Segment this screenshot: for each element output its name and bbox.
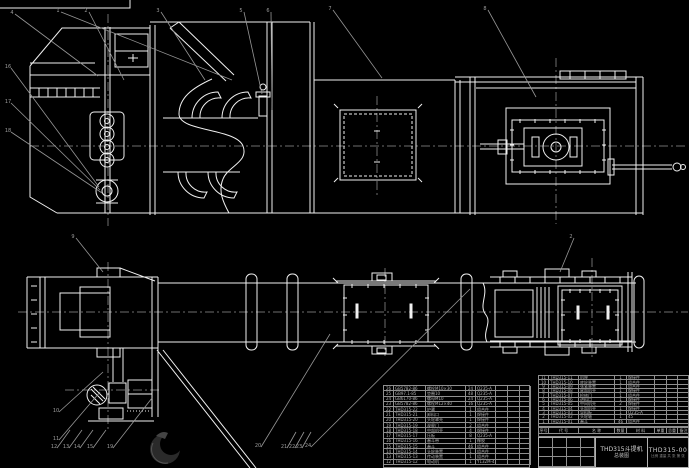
bom-header-cell: 序号 [539, 428, 549, 434]
balloon-number: 2 [569, 234, 572, 240]
bom-cell: THD315-12 [394, 460, 426, 465]
leader-line [11, 68, 99, 187]
drawing-type: 总装图 [614, 453, 629, 459]
bom-cell: 12 [384, 460, 394, 465]
leader-line [113, 398, 152, 448]
leader-line [93, 430, 106, 448]
side-elevation-view [30, 22, 686, 215]
sheet-frame-fragment [0, 0, 130, 8]
bom-cell [520, 460, 531, 465]
title-extra-row: 比例 重量 共 张 第 张 [651, 454, 685, 458]
balloon-number: 4 [10, 10, 13, 16]
leader-line [244, 12, 262, 94]
balloon-number: 20 [255, 443, 261, 449]
centerlines [18, 14, 688, 430]
bom-header-cell: 备注 [678, 428, 689, 434]
leader-line [76, 238, 103, 272]
balloon-number: 13 [63, 444, 69, 450]
product-title: THD315斗提机 [600, 446, 642, 453]
leader-line [261, 334, 330, 447]
balloon-number: 22 [289, 444, 295, 450]
balloon-number: 1 [56, 8, 59, 14]
leader-line [488, 10, 536, 97]
bom-table-left: 26GB5782-86螺栓M10×3024Q235-A25GB97.1-85垫圈… [383, 385, 530, 468]
leader-line [333, 10, 382, 78]
balloon-number: 9 [71, 234, 74, 240]
bom-cell [678, 420, 689, 424]
leader-line [560, 238, 574, 272]
balloon-number: 3 [156, 8, 159, 14]
balloon-number: 23 [296, 444, 302, 450]
bom-cell: 1 [539, 420, 549, 424]
bom-cell [655, 420, 667, 424]
bom-header-cell: 数量 [615, 428, 627, 434]
balloon-number: 5 [239, 8, 242, 14]
leader-line [59, 372, 103, 412]
bom-cell [667, 420, 678, 424]
balloon-number: 15 [87, 444, 93, 450]
title-number-cell: THD315-00 比例 重量 共 张 第 张 [648, 438, 688, 467]
bom-cell: Y132M-4 [476, 460, 496, 465]
leader-lines: 4123567816171891011121314151920212223242 [5, 6, 574, 450]
balloon-number: 24 [305, 443, 311, 449]
bom-cell: 电动机 [426, 460, 466, 465]
balloon-number: 21 [281, 444, 287, 450]
bom-header-cell: 总重 [667, 428, 678, 434]
bom-header-row: 序号代 号名 称数量材 料单重总重备注 [538, 427, 689, 437]
balloon-number: 19 [107, 444, 113, 450]
balloon-number: 6 [266, 8, 269, 14]
cad-sheet: 4123567816171891011121314151920212223242… [0, 0, 689, 468]
bom-header-cell: 代 号 [549, 428, 579, 434]
balloon-number: 2 [84, 8, 87, 14]
leader-line [15, 14, 98, 76]
bom-cell [508, 460, 520, 465]
leader-line [11, 132, 102, 193]
balloon-number: 8 [483, 6, 486, 12]
revision-grid [539, 438, 596, 467]
bom-cell: 1 [466, 460, 476, 465]
balloon-number: 11 [53, 436, 59, 442]
title-block: THD315斗提机 总装图 THD315-00 比例 重量 共 张 第 张 [538, 437, 689, 468]
balloon-number: 18 [5, 128, 11, 134]
balloon-number: 17 [5, 99, 11, 105]
bom-cell: 组合件 [627, 420, 655, 424]
bom-cell: THD315-01 [549, 420, 579, 424]
balloon-number: 7 [328, 6, 331, 12]
balloon-number: 14 [74, 444, 80, 450]
drawing-number: THD315-00 [649, 447, 688, 454]
bom-header-cell: 单重 [655, 428, 667, 434]
title-name-cell: THD315斗提机 总装图 [596, 438, 648, 467]
bom-cell: 46 [615, 420, 627, 424]
bom-cell: 畚斗 [579, 420, 615, 424]
leader-line [89, 12, 124, 80]
balloon-number: 12 [51, 444, 57, 450]
balloon-number: 16 [5, 64, 11, 70]
bom-header-cell: 名 称 [579, 428, 615, 434]
watermark-logo [150, 432, 182, 464]
bom-header-cell: 材 料 [627, 428, 655, 434]
bom-table-right: 11THD315-11机座1焊接件10THD315-10底轮装置1组合件9THD… [538, 375, 689, 427]
bom-cell [496, 460, 508, 465]
balloon-number: 10 [53, 408, 59, 414]
